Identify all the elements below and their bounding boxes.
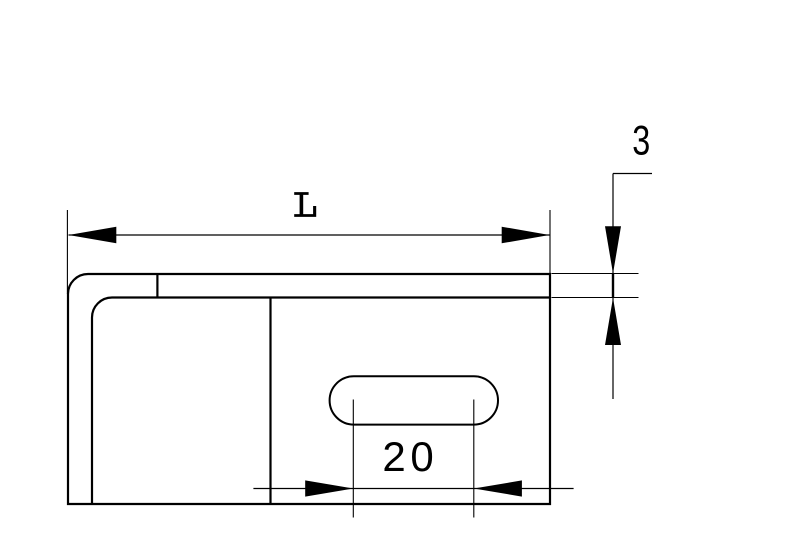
svg-text:0: 0 <box>410 433 433 480</box>
svg-text:3: 3 <box>632 117 650 164</box>
svg-text:2: 2 <box>382 433 405 480</box>
